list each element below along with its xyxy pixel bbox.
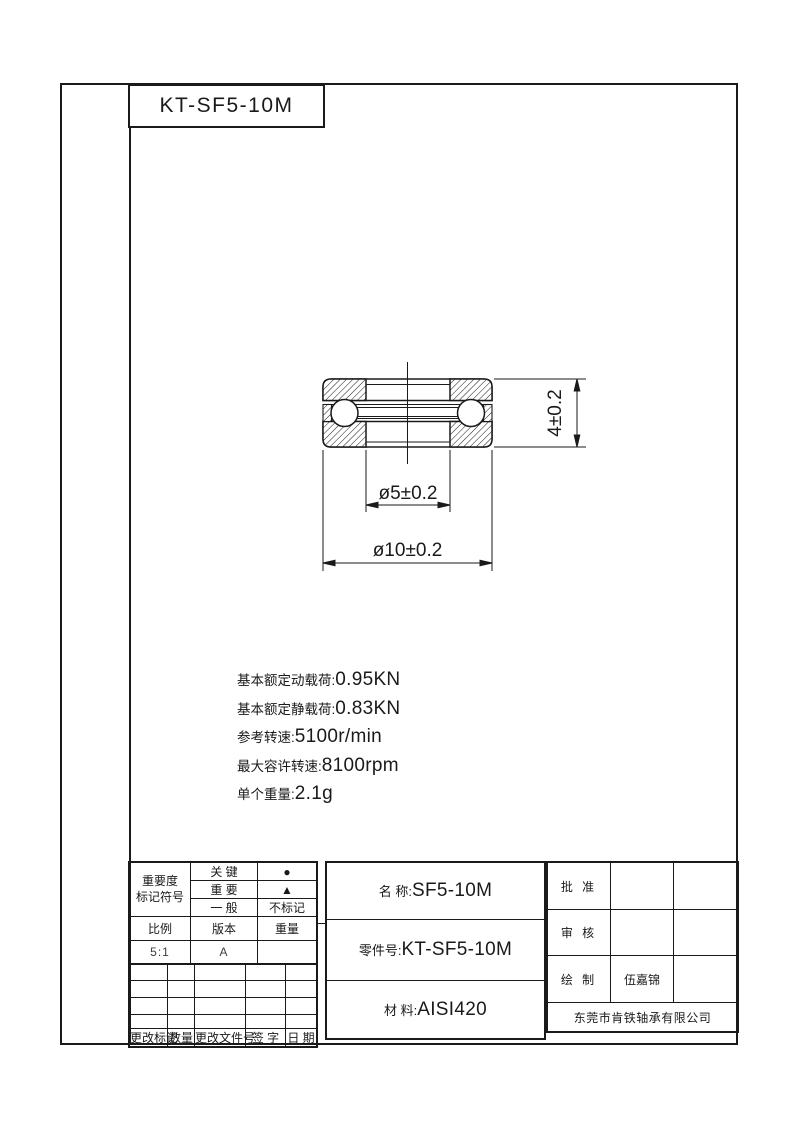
table-row (129, 998, 317, 1015)
table-row (129, 964, 317, 981)
table-row: 重要度 标记符号 关 键 ● (129, 862, 317, 881)
cell-empty (168, 981, 195, 998)
revision-table-block: 重要度 标记符号 关 键 ● 重 要 ▲ 一 般 不标记 比例 版本 重量 5:… (128, 861, 318, 1048)
cell-approve-name (611, 862, 674, 910)
dim-text-outer: ø10±0.2 (373, 540, 443, 561)
arrow-left (323, 560, 335, 566)
table-row: 比例 版本 重量 (129, 917, 317, 941)
cell-empty (286, 964, 318, 981)
importance-table: 重要度 标记符号 关 键 ● 重 要 ▲ 一 般 不标记 比例 版本 重量 5:… (128, 861, 318, 965)
part-name-value: SF5-10M (412, 880, 492, 901)
cell-empty (195, 981, 246, 998)
cell-change-mark-label: 更改标记 (129, 1029, 168, 1048)
arrow-right (438, 502, 450, 508)
importance-line1: 重要度 (130, 874, 190, 890)
cell-empty (195, 1015, 246, 1029)
arrow-left (366, 502, 378, 508)
part-info-block: 名 称:SF5-10M 零件号:KT-SF5-10M 材 料:AISI420 (325, 861, 546, 1040)
cell-mark-unmarked: 不标记 (258, 899, 318, 917)
cell-approve-label: 批 准 (547, 862, 611, 910)
table-row: 绘 制 伍嘉锦 (547, 956, 738, 1003)
cell-empty (168, 998, 195, 1015)
cell-material: 材 料:AISI420 (326, 981, 545, 1040)
cell-empty (168, 1015, 195, 1029)
arrow-down (574, 435, 580, 447)
arrow-right (480, 560, 492, 566)
dim-text-bore: ø5±0.2 (378, 483, 437, 504)
spec-row-max-speed: 最大容许转速:8100rpm (237, 755, 400, 784)
cell-weight-value (258, 941, 318, 965)
spec-row-unit-weight: 单个重量:2.1g (237, 783, 400, 812)
cell-empty (674, 956, 739, 1003)
cell-empty (286, 981, 318, 998)
top-right-washer-section (450, 379, 492, 401)
part-number-label: 零件号: (359, 943, 402, 958)
table-row: 5:1 A (129, 941, 317, 965)
cell-check-name (611, 910, 674, 956)
cell-empty (246, 981, 286, 998)
cell-mark-filled-circle-icon: ● (258, 862, 318, 881)
cell-level-key: 关 键 (191, 862, 258, 881)
arrow-up (574, 379, 580, 391)
table-row: 审 核 (547, 910, 738, 956)
spec-row-reference-speed: 参考转速:5100r/min (237, 726, 400, 755)
left-ball (331, 400, 358, 427)
table-row: 材 料:AISI420 (326, 981, 545, 1040)
spec-label: 最大容许转速: (237, 755, 322, 775)
cell-date-label: 日 期 (286, 1029, 318, 1048)
dimension-height (494, 379, 586, 447)
cell-empty (246, 998, 286, 1015)
cell-part-number: 零件号:KT-SF5-10M (326, 920, 545, 981)
part-name-label: 名 称: (379, 884, 412, 899)
cell-importance-header: 重要度 标记符号 (129, 862, 191, 917)
cell-quantity-label: 数量 (168, 1029, 195, 1048)
cell-scale-value: 5:1 (129, 941, 191, 965)
right-ball (458, 400, 485, 427)
table-row: 批 准 (547, 862, 738, 910)
cell-company-name: 东莞市肯铁轴承有限公司 (547, 1003, 738, 1033)
cell-change-doc-label: 更改文件号 (195, 1029, 246, 1048)
spec-label: 单个重量: (237, 783, 295, 803)
cell-empty (129, 964, 168, 981)
part-info-table: 名 称:SF5-10M 零件号:KT-SF5-10M 材 料:AISI420 (325, 861, 546, 1040)
cell-mark-filled-triangle-icon: ▲ (258, 881, 318, 899)
approval-table: 批 准 审 核 绘 制 伍嘉锦 东莞市肯铁轴承有限公司 (546, 861, 739, 1033)
cell-version-value: A (191, 941, 258, 965)
spec-value: 0.83KN (335, 698, 400, 720)
material-label: 材 料: (384, 1003, 417, 1018)
spec-value: 2.1g (295, 783, 333, 805)
spec-label: 基本额定动载荷: (237, 669, 335, 689)
importance-line2: 标记符号 (130, 890, 190, 906)
cell-empty (286, 1015, 318, 1029)
spec-value: 8100rpm (322, 755, 399, 777)
drawing-sheet: KT-SF5-10M (0, 0, 800, 1131)
cell-draw-name: 伍嘉锦 (611, 956, 674, 1003)
revision-history-table: 更改标记 数量 更改文件号 签 字 日 期 (128, 963, 318, 1048)
cell-empty (195, 964, 246, 981)
part-number-value: KT-SF5-10M (401, 939, 512, 960)
top-left-washer-section (323, 379, 366, 401)
cell-empty (286, 998, 318, 1015)
dim-text-height: 4±0.2 (545, 389, 566, 436)
left-lip-section (323, 405, 332, 422)
connector-tick (317, 923, 325, 925)
cell-draw-label: 绘 制 (547, 956, 611, 1003)
table-row: 零件号:KT-SF5-10M (326, 920, 545, 981)
cell-empty (246, 1015, 286, 1029)
material-value: AISI420 (417, 999, 487, 1020)
cell-part-name: 名 称:SF5-10M (326, 862, 545, 920)
cell-empty (195, 998, 246, 1015)
cell-scale-label: 比例 (129, 917, 191, 941)
spec-label: 基本额定静载荷: (237, 698, 335, 718)
table-row: 名 称:SF5-10M (326, 862, 545, 920)
spec-value: 0.95KN (335, 669, 400, 691)
table-row (129, 981, 317, 998)
table-row: 更改标记 数量 更改文件号 签 字 日 期 (129, 1029, 317, 1048)
cell-signature-label: 签 字 (246, 1029, 286, 1048)
cell-empty (246, 964, 286, 981)
cell-weight-label: 重量 (258, 917, 318, 941)
cell-empty (168, 964, 195, 981)
spec-value: 5100r/min (295, 726, 382, 748)
cell-version-label: 版本 (191, 917, 258, 941)
spec-row-dynamic-load: 基本额定动载荷:0.95KN (237, 669, 400, 698)
spec-label: 参考转速: (237, 726, 295, 746)
cell-empty (129, 1015, 168, 1029)
cell-level-important: 重 要 (191, 881, 258, 899)
cell-empty (674, 862, 739, 910)
spec-list: 基本额定动载荷:0.95KN 基本额定静载荷:0.83KN 参考转速:5100r… (237, 669, 400, 812)
table-row (129, 1015, 317, 1029)
cell-empty (674, 910, 739, 956)
cell-check-label: 审 核 (547, 910, 611, 956)
approval-block: 批 准 审 核 绘 制 伍嘉锦 东莞市肯铁轴承有限公司 (546, 861, 739, 1033)
cell-empty (129, 981, 168, 998)
spec-row-static-load: 基本额定静载荷:0.83KN (237, 698, 400, 727)
cell-level-general: 一 般 (191, 899, 258, 917)
table-row: 东莞市肯铁轴承有限公司 (547, 1003, 738, 1033)
cell-empty (129, 998, 168, 1015)
